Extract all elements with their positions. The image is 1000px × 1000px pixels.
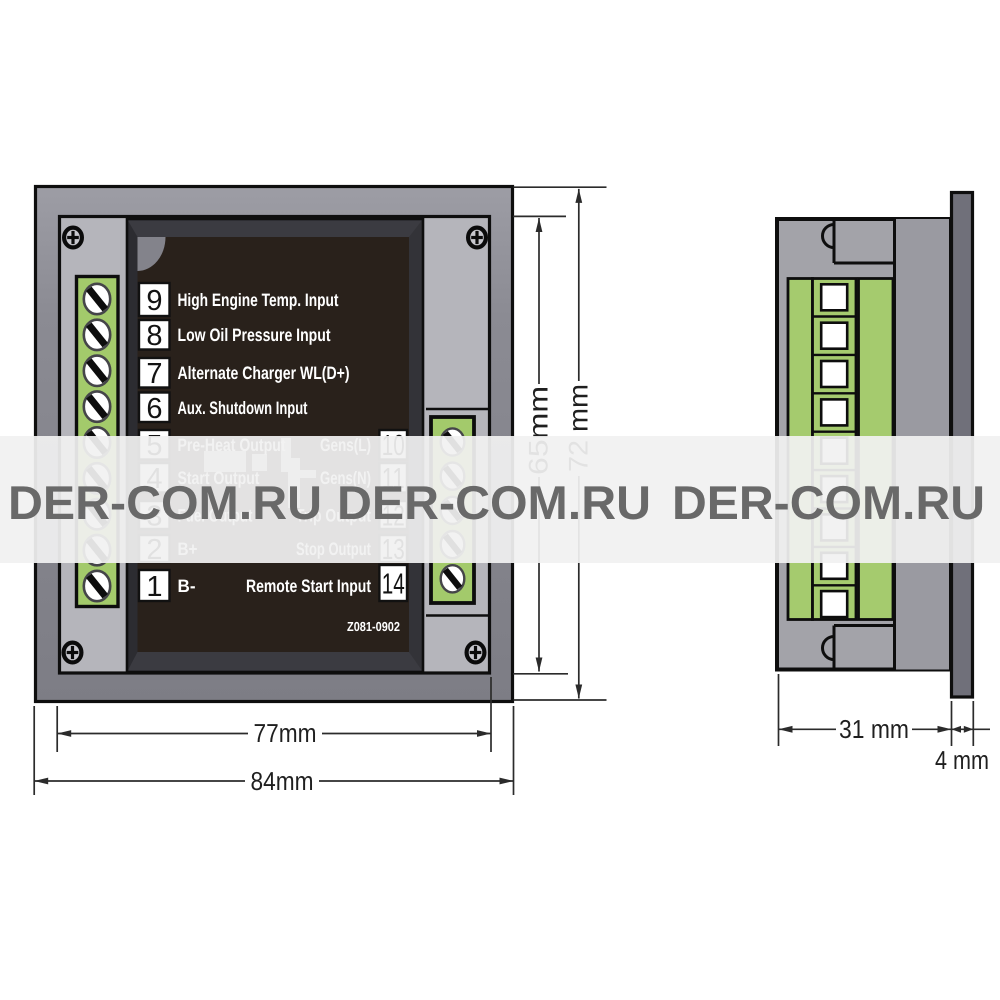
- svg-text:B-: B-: [178, 576, 196, 596]
- svg-text:9: 9: [146, 285, 162, 317]
- svg-text:Aux. Shutdown Input: Aux. Shutdown Input: [178, 398, 308, 418]
- svg-text:Low Oil Pressure Input: Low Oil Pressure Input: [178, 325, 331, 345]
- svg-text:DER-COM.RU: DER-COM.RU: [337, 477, 651, 530]
- svg-text:DER-COM.RU: DER-COM.RU: [672, 477, 985, 530]
- svg-text:4 mm: 4 mm: [935, 745, 989, 775]
- svg-text:6: 6: [146, 393, 162, 425]
- svg-text:84mm: 84mm: [251, 766, 314, 796]
- svg-text:31 mm: 31 mm: [839, 714, 909, 744]
- svg-text:7: 7: [146, 358, 162, 390]
- svg-text:8: 8: [146, 320, 162, 352]
- svg-text:Alternate Charger WL(D+): Alternate Charger WL(D+): [178, 363, 350, 383]
- svg-text:Z081-0902: Z081-0902: [347, 619, 400, 634]
- svg-text:77mm: 77mm: [254, 718, 317, 748]
- svg-text:1: 1: [146, 571, 162, 603]
- svg-text:Remote Start Input: Remote Start Input: [246, 576, 371, 596]
- svg-text:14: 14: [382, 569, 405, 601]
- svg-text:High Engine Temp. Input: High Engine Temp. Input: [178, 290, 339, 310]
- svg-text:DER-COM.RU: DER-COM.RU: [8, 477, 322, 530]
